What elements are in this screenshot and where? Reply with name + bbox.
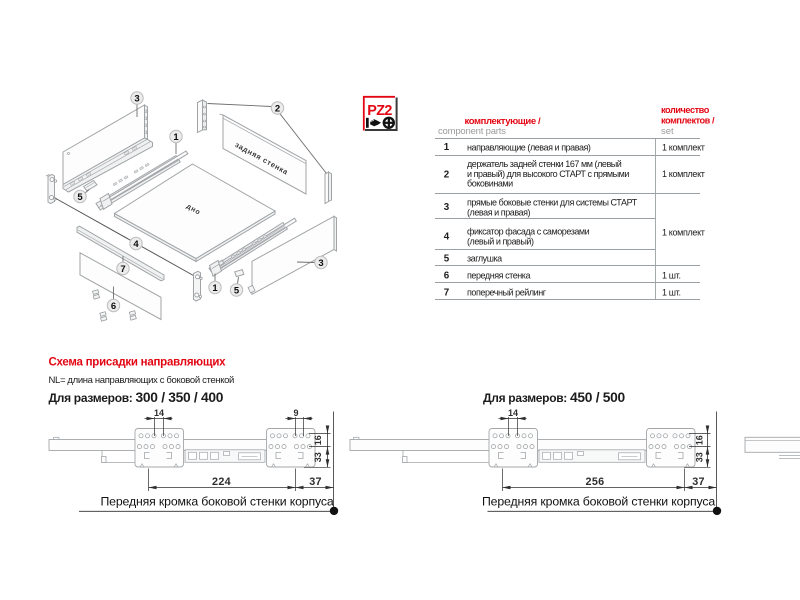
svg-text:1: 1 [173,132,179,143]
svg-text:7: 7 [120,264,125,275]
svg-text:component parts: component parts [438,126,506,137]
svg-text:4: 4 [133,239,139,250]
svg-text:количество: количество [661,105,710,115]
svg-text:4: 4 [444,231,450,242]
svg-text:1 комплект: 1 комплект [662,142,705,152]
svg-text:33: 33 [695,452,705,462]
svg-text:направляющие (левая и правая): направляющие (левая и правая) [467,142,591,152]
svg-text:Схема присадки направляющих: Схема присадки направляющих [49,357,227,369]
svg-text:set: set [661,126,674,137]
svg-text:14: 14 [508,408,518,418]
svg-text:14: 14 [154,408,164,418]
svg-text:(левая и правая): (левая и правая) [467,207,531,217]
svg-text:3: 3 [134,93,139,104]
svg-text:прямые боковые стенки для сист: прямые боковые стенки для системы СТАРТ [467,198,638,208]
svg-text:Для размеров: 300 / 350 / 400: Для размеров: 300 / 350 / 400 [49,390,224,405]
svg-text:256: 256 [586,476,605,488]
svg-text:7: 7 [444,288,450,299]
svg-text:6: 6 [111,301,116,312]
svg-text:боковинами: боковинами [467,179,513,189]
svg-text:Передняя кромка боковой стенки: Передняя кромка боковой стенки корпуса [100,495,333,509]
svg-text:1: 1 [212,283,218,294]
svg-text:37: 37 [692,476,705,488]
svg-text:NL= длина направляющих с боков: NL= длина направляющих с боковой стенкой [49,375,235,386]
svg-text:3: 3 [444,202,450,213]
svg-text:комплектов /: комплектов / [661,116,715,126]
svg-text:PZ2: PZ2 [367,103,392,119]
svg-text:заглушка: заглушка [467,253,502,263]
svg-text:5: 5 [234,285,240,296]
svg-text:1 шт.: 1 шт. [662,288,681,298]
svg-text:поперечный рейлинг: поперечный рейлинг [467,288,547,298]
svg-text:(левый и правый): (левый и правый) [467,236,534,246]
svg-text:9: 9 [293,408,298,418]
svg-text:6: 6 [444,270,450,281]
svg-text:3: 3 [318,258,323,269]
svg-text:Для размеров: 450 / 500: Для размеров: 450 / 500 [483,390,626,405]
svg-text:1 шт.: 1 шт. [662,270,681,280]
svg-text:держатель задней стенки 167 мм: держатель задней стенки 167 мм (левый [467,159,622,169]
svg-text:5: 5 [77,192,83,203]
svg-text:224: 224 [212,476,231,488]
svg-text:передняя стенка: передняя стенка [467,270,530,280]
svg-text:37: 37 [309,476,322,488]
svg-text:2: 2 [275,103,280,114]
svg-text:фиксатор фасада с саморезами: фиксатор фасада с саморезами [467,227,590,237]
svg-text:1 комплект: 1 комплект [662,169,705,179]
svg-text:16: 16 [313,435,323,445]
svg-text:16: 16 [695,435,705,445]
svg-text:Передняя кромка боковой стенки: Передняя кромка боковой стенки корпуса [482,495,715,509]
svg-text:33: 33 [313,452,323,462]
svg-text:1: 1 [444,142,450,153]
svg-text:1 комплект: 1 комплект [662,227,705,237]
svg-text:2: 2 [444,169,450,180]
svg-text:5: 5 [444,253,450,264]
svg-text:и правый) для высокого СТАРТ с: и правый) для высокого СТАРТ с прямыми [467,169,629,179]
